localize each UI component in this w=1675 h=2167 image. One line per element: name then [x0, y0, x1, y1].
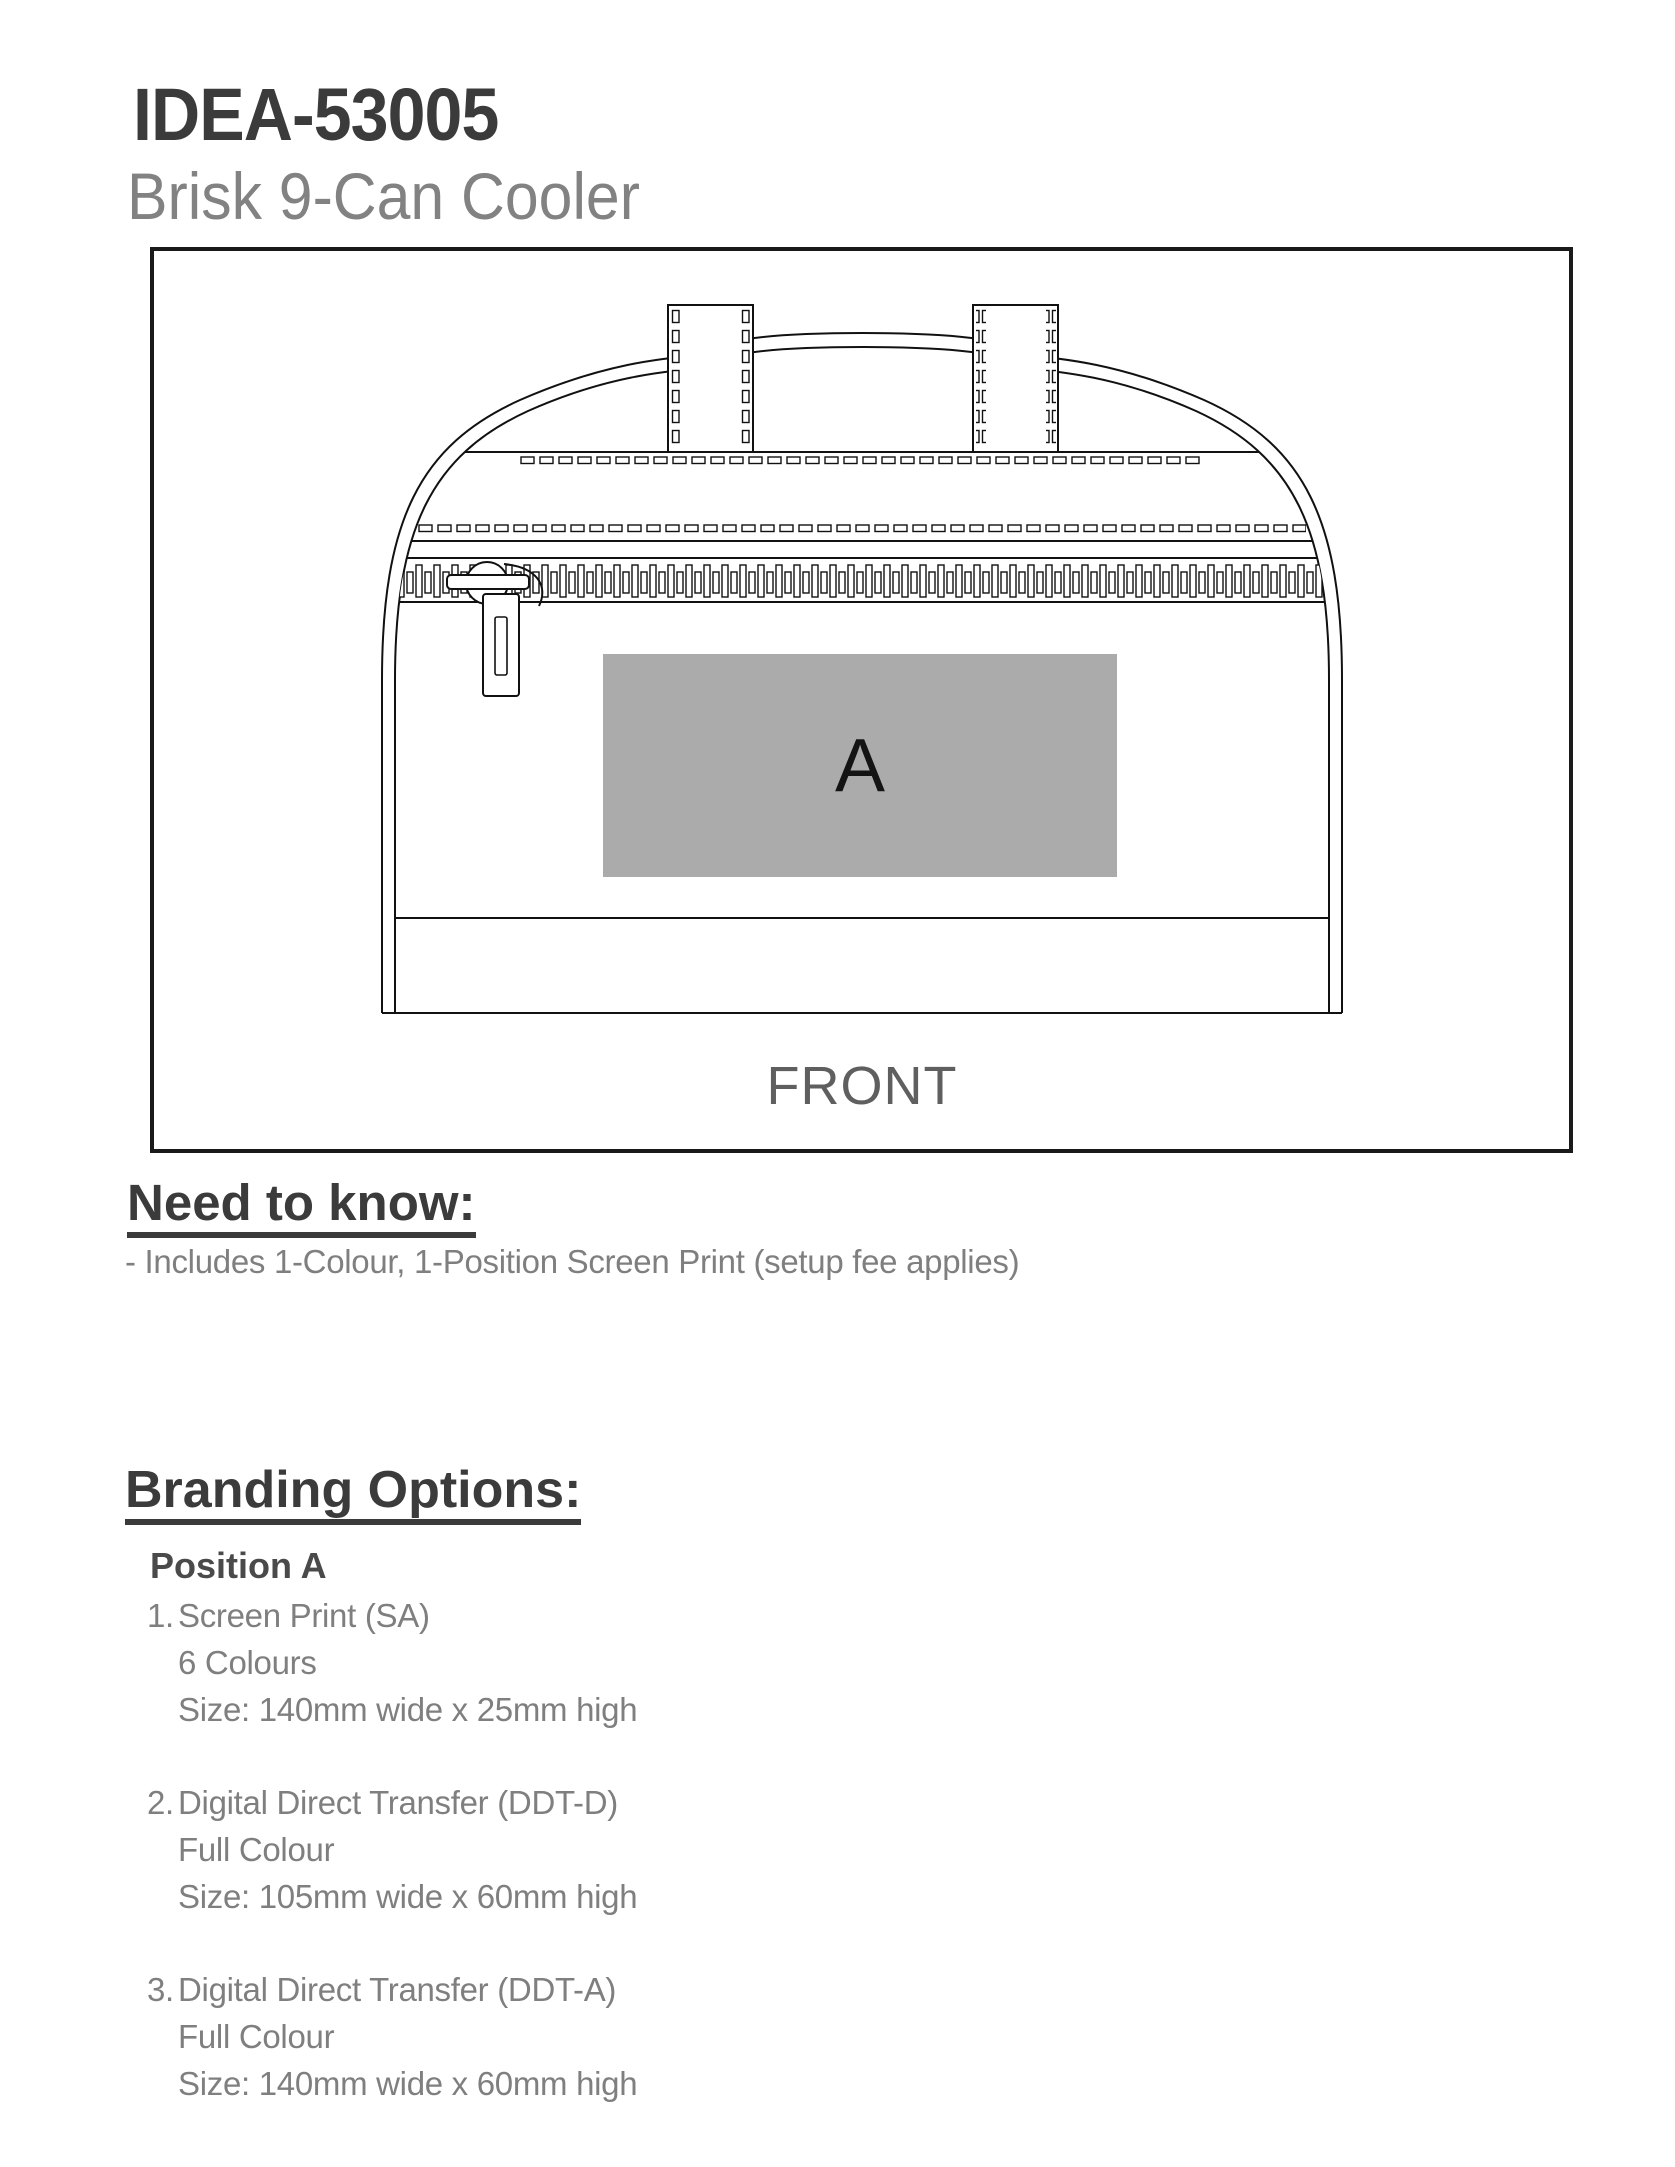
branding-options-heading: Branding Options: [125, 1464, 581, 1525]
item-method: Digital Direct Transfer (DDT-D) [178, 1779, 637, 1826]
item-method: Digital Direct Transfer (DDT-A) [178, 1966, 637, 2013]
need-to-know-heading: Need to know: [127, 1177, 476, 1238]
page-title: IDEA-53005 [133, 78, 498, 152]
zipper-teeth [396, 561, 1328, 601]
need-to-know-note: - Includes 1-Colour, 1-Position Screen P… [125, 1242, 1019, 1282]
spec-sheet-page: IDEA-53005 Brisk 9-Can Cooler [0, 0, 1675, 2167]
branding-item-1: 1. Screen Print (SA) 6 Colours Size: 140… [147, 1592, 637, 1733]
item-colours: Full Colour [178, 2013, 637, 2060]
item-colours: 6 Colours [178, 1639, 637, 1686]
branding-item-2: 2. Digital Direct Transfer (DDT-D) Full … [147, 1779, 637, 1920]
print-area-label: A [835, 723, 885, 807]
item-number: 3. [147, 1966, 178, 2107]
position-a-heading: Position A [150, 1548, 327, 1584]
front-view-label: FRONT [767, 1056, 958, 1116]
item-colours: Full Colour [178, 1826, 637, 1873]
strap-right [973, 305, 1058, 452]
branding-options-list: 1. Screen Print (SA) 6 Colours Size: 140… [147, 1592, 637, 2153]
item-size: Size: 105mm wide x 60mm high [178, 1873, 637, 1920]
branding-item-3: 3. Digital Direct Transfer (DDT-A) Full … [147, 1966, 637, 2107]
item-size: Size: 140mm wide x 60mm high [178, 2060, 637, 2107]
item-number: 2. [147, 1779, 178, 1920]
item-size: Size: 140mm wide x 25mm high [178, 1686, 637, 1733]
cooler-bag-drawing: A FRONT [150, 247, 1573, 1153]
item-number: 1. [147, 1592, 178, 1733]
page-subtitle: Brisk 9-Can Cooler [127, 163, 640, 229]
strap-left [668, 305, 753, 452]
product-diagram-figure: A FRONT [150, 247, 1573, 1153]
item-method: Screen Print (SA) [178, 1592, 637, 1639]
